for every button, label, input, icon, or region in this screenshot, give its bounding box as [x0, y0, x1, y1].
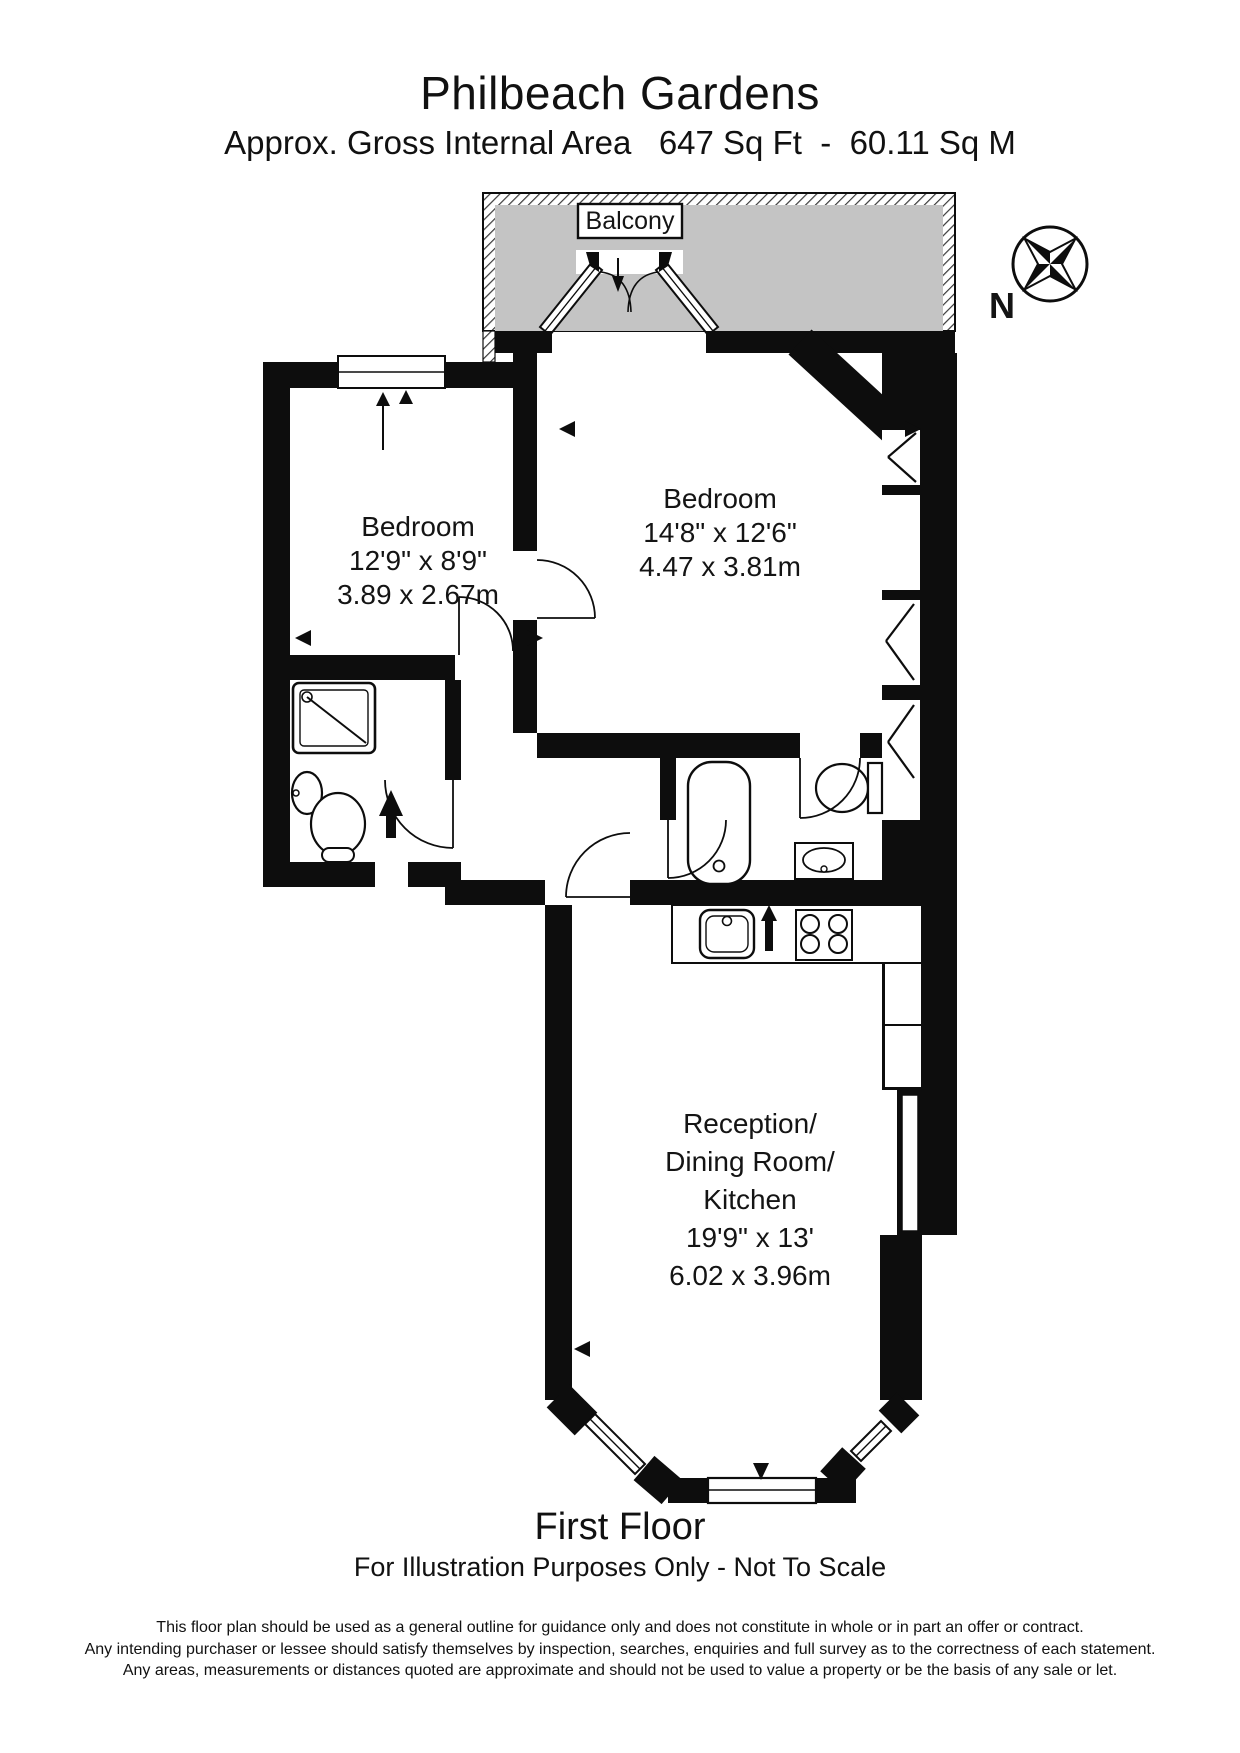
wc-toilet [816, 764, 868, 812]
entrance-arrow-icon [379, 790, 403, 838]
wall-shower-right [445, 680, 461, 780]
wall-reception-top-left [445, 880, 545, 905]
floorplan-drawing: Balcony N [0, 0, 1240, 1753]
reception-name-1: Reception/ [683, 1108, 817, 1139]
wall-entry-left [263, 862, 375, 887]
bedroom2-door [537, 560, 595, 618]
wall-bedroom1-bottom [263, 655, 455, 680]
balcony-left-border-extension [483, 331, 495, 362]
disclaimer-line: This floor plan should be used as a gene… [0, 1617, 1240, 1639]
floor-label: First Floor [0, 1506, 1240, 1549]
disclaimer-line: Any intending purchaser or lessee should… [0, 1639, 1240, 1661]
reception-dims-imperial: 19'9" x 13' [686, 1222, 814, 1253]
wall-bedroom-divider-upper [513, 331, 537, 551]
wall-reception-left [545, 905, 572, 1400]
wall-bay-bottom-left [668, 1478, 708, 1503]
wall-right-outer [920, 353, 957, 1090]
compass-north-label: N [989, 285, 1015, 326]
disclaimer-line: Any areas, measurements or distances quo… [0, 1660, 1240, 1682]
bedroom2-dims-metric: 4.47 x 3.81m [639, 551, 801, 582]
reception-label: Reception/ Dining Room/ Kitchen 19'9" x … [665, 1108, 835, 1291]
bedroom2-dims-imperial: 14'8" x 12'6" [643, 517, 797, 548]
wall-reception-right-lower [880, 1235, 922, 1400]
floorplan-page: Philbeach Gardens Approx. Gross Internal… [0, 0, 1240, 1753]
wall-bedroom2-bottom [537, 733, 800, 758]
bedroom1-label: Bedroom 12'9" x 8'9" 3.89 x 2.67m [337, 511, 499, 610]
reception-name-2: Dining Room/ [665, 1146, 835, 1177]
reception-name-3: Kitchen [703, 1184, 796, 1215]
bedroom1-name: Bedroom [361, 511, 475, 542]
kitchen-side-counter-1 [884, 963, 922, 1025]
reception-dims-metric: 6.02 x 3.96m [669, 1260, 831, 1291]
bedroom2-label: Bedroom 14'8" x 12'6" 4.47 x 3.81m [639, 483, 801, 582]
wall-bedroom2-bottom-right [860, 733, 882, 758]
reception-door [566, 833, 630, 897]
reception-side-window [902, 1095, 918, 1231]
bedroom1-dims-imperial: 12'9" x 8'9" [349, 545, 487, 576]
balcony-label: Balcony [586, 207, 675, 235]
kitchen-side-counter-2 [884, 1025, 922, 1088]
bedroom2-window-2 [882, 495, 920, 590]
bedroom2-name: Bedroom [663, 483, 777, 514]
wall-left-exterior [263, 362, 290, 862]
scale-note: For Illustration Purposes Only - Not To … [0, 1552, 1240, 1583]
wall-bathroom-left [660, 758, 676, 820]
disclaimer: This floor plan should be used as a gene… [0, 1617, 1240, 1682]
wall-bay-bottom-right [816, 1478, 856, 1503]
wall-kitchen-top [630, 880, 922, 905]
bedroom1-dims-metric: 3.89 x 2.67m [337, 579, 499, 610]
shower-room-toilet [311, 793, 365, 855]
compass-rose-icon: N [989, 227, 1087, 326]
